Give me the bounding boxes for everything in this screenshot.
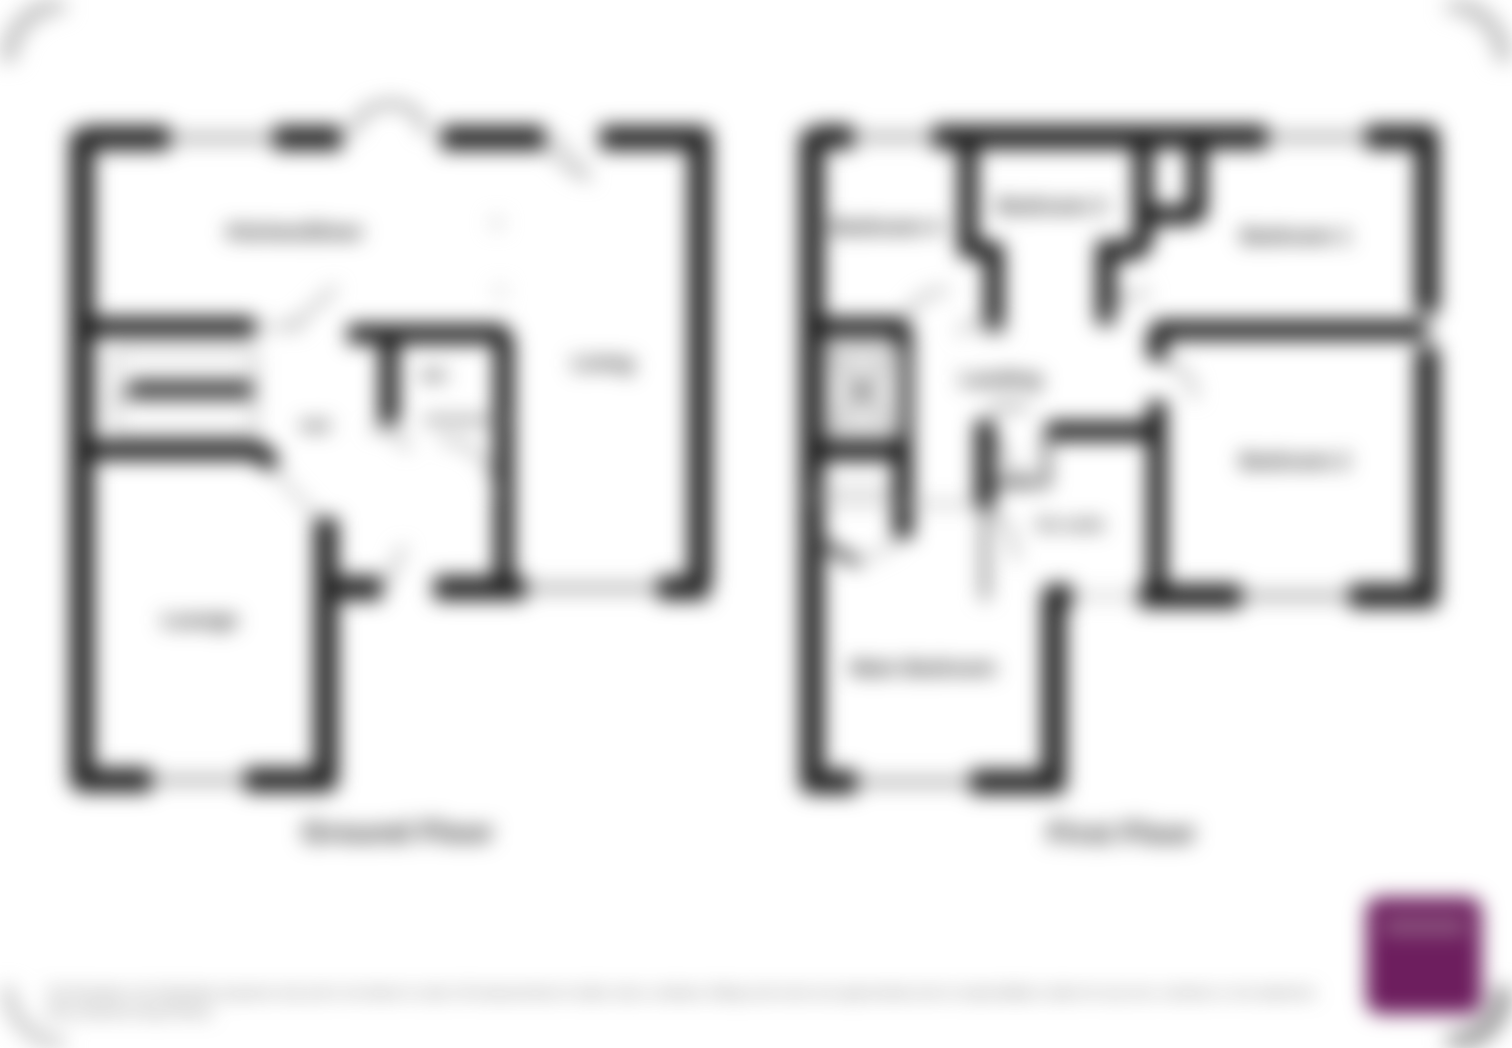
svg-text:Bedroom 2: Bedroom 2 <box>1240 450 1350 473</box>
svg-text:Living: Living <box>572 352 634 375</box>
svg-text:Kitchen/Diner: Kitchen/Diner <box>227 221 364 244</box>
svg-text:This floorplan is for illustra: This floorplan is for illustrative purpo… <box>46 985 1318 1000</box>
svg-text:Plan produced using PlanUp.: Plan produced using PlanUp. <box>46 1004 214 1019</box>
svg-text:Lounge: Lounge <box>162 609 238 632</box>
svg-text:First Floor: First Floor <box>1048 817 1197 850</box>
svg-text:Bedroom 4: Bedroom 4 <box>831 216 941 239</box>
svg-text:Ground Floor: Ground Floor <box>302 816 494 849</box>
svg-text:Landing: Landing <box>960 368 1042 391</box>
svg-text:Hall: Hall <box>300 418 329 435</box>
svg-text:Bedroom 3: Bedroom 3 <box>997 195 1107 218</box>
svg-text:WC: WC <box>422 368 449 385</box>
svg-text:Bedroom 1: Bedroom 1 <box>1241 225 1351 248</box>
svg-text:En-suite: En-suite <box>1037 515 1104 534</box>
svg-text:Main Bedroom: Main Bedroom <box>850 657 996 680</box>
